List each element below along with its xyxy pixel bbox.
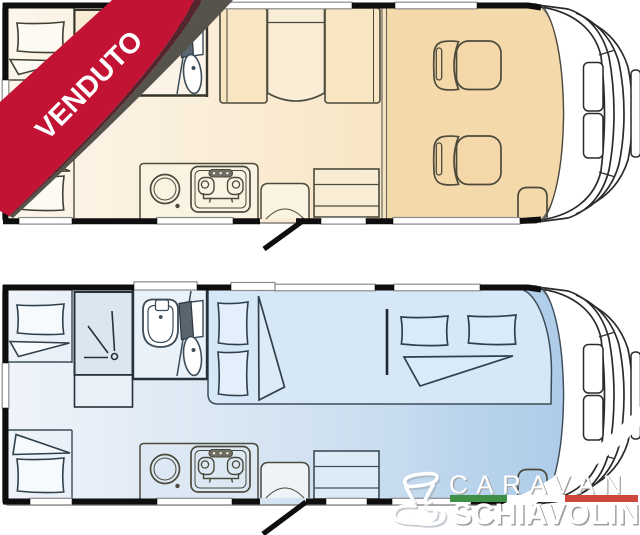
svg-text:SCHIAVOLIN: SCHIAVOLIN bbox=[452, 498, 640, 531]
